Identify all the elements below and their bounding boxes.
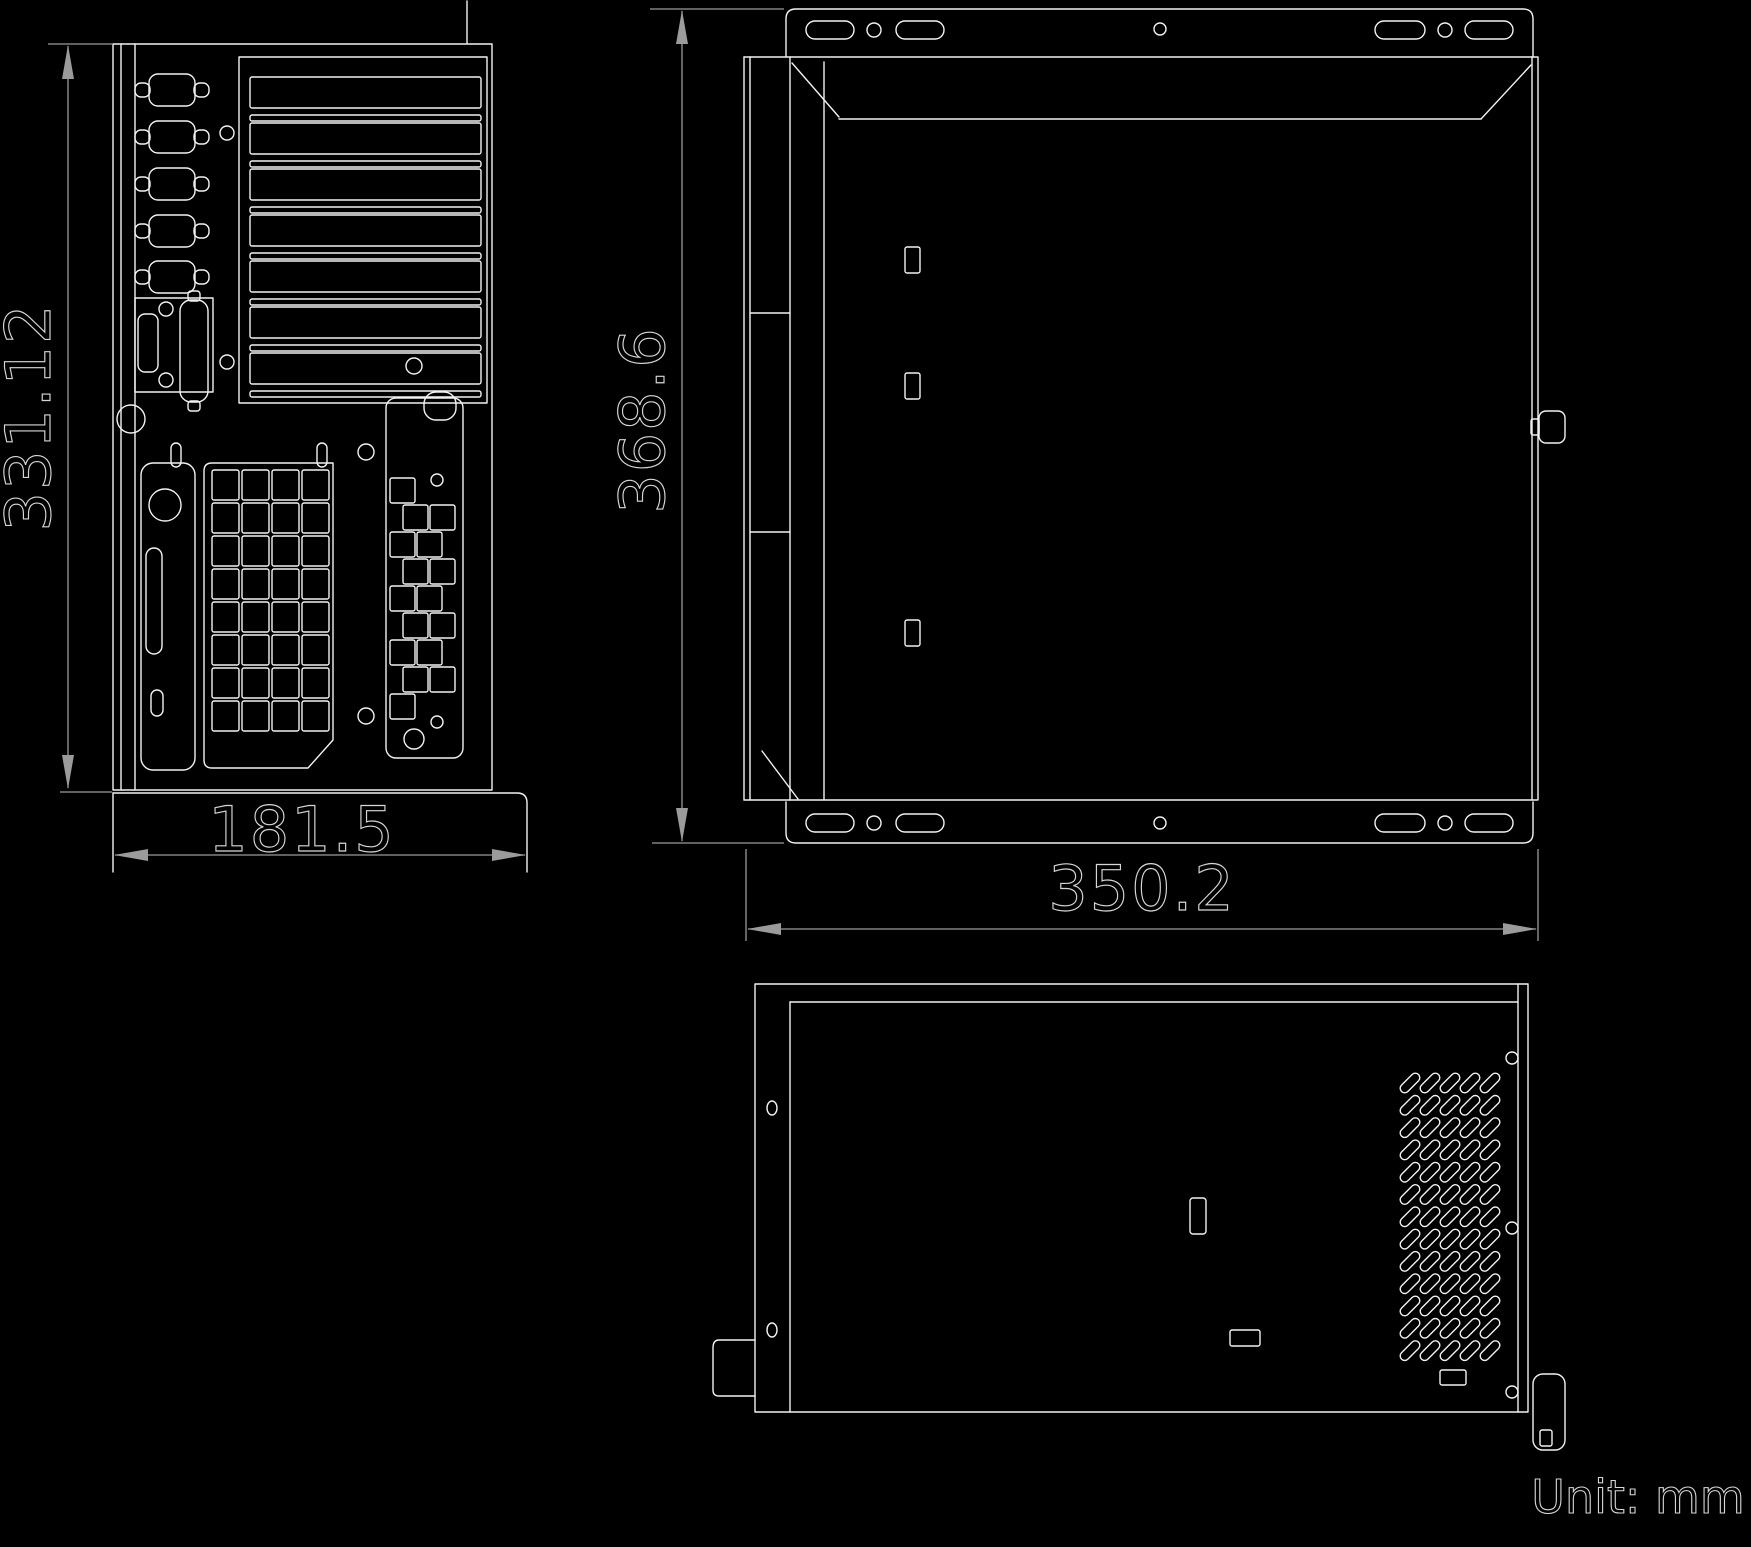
handle-notch — [424, 392, 456, 420]
serial-port-connector — [135, 215, 209, 247]
serial-port-connector — [135, 121, 209, 153]
side-tab — [713, 1340, 755, 1396]
io-bracket-left — [141, 463, 195, 770]
screw-hole — [431, 474, 443, 486]
expansion-slot-cover — [250, 353, 481, 397]
screw-hole — [404, 729, 424, 749]
expansion-slot-cover — [250, 215, 481, 259]
vent-grid-row — [212, 635, 329, 665]
chassis-dimension-drawing: 331.12 181.5 — [0, 0, 1751, 1547]
side-height-dimension-label: 368.6 — [606, 326, 679, 514]
screw-hole — [1506, 1386, 1518, 1398]
screw-hole — [767, 1323, 777, 1337]
top-mounting-flange — [786, 9, 1533, 57]
slot-cutout — [1230, 1330, 1260, 1346]
expansion-slot-cover — [250, 307, 481, 351]
drawing-page: 331.12 181.5 — [0, 0, 1751, 1547]
serial-port-connector — [135, 168, 209, 200]
dimension-rear-height: 331.12 — [0, 44, 112, 792]
mounting-slot — [1375, 814, 1425, 832]
psu-bracket — [386, 392, 463, 758]
round-cutout — [149, 489, 181, 521]
vent-grid-row — [212, 503, 329, 533]
screw-hole — [159, 373, 173, 387]
dimension-side-width: 350.2 — [746, 849, 1538, 941]
side-view — [744, 9, 1565, 843]
slot-cutout — [1440, 1370, 1466, 1385]
psu-vent-squares — [390, 478, 455, 719]
mounting-slot — [1465, 21, 1513, 39]
screw-hole — [406, 358, 422, 374]
rear-base-width-dimension-label: 181.5 — [208, 793, 396, 866]
mounting-hole — [1154, 23, 1166, 35]
video-port-panel — [135, 291, 213, 411]
slot-cutout — [1190, 1198, 1206, 1234]
dimension-rear-base-width: 181.5 — [114, 793, 526, 866]
unit-note: Unit: mm — [1531, 1470, 1744, 1524]
mounting-slot — [806, 21, 854, 39]
vent-grid-row — [212, 668, 329, 698]
mounting-hole — [1438, 816, 1452, 830]
vent-grid-row — [212, 602, 329, 632]
top-left-chamfer — [792, 63, 839, 117]
mounting-hole — [867, 23, 881, 37]
expansion-slot-area — [239, 57, 487, 403]
oval-cutout — [151, 690, 163, 716]
screw-hole — [358, 444, 374, 460]
panel-latch-slot — [905, 247, 920, 273]
front-bezel-strip — [744, 57, 824, 800]
rear-lock-tab — [1531, 411, 1565, 443]
serial-port-connector — [135, 74, 209, 106]
dvi-connector — [180, 300, 208, 402]
screw-hole — [1506, 1052, 1518, 1064]
vent-grid-row — [212, 701, 329, 731]
rear-height-dimension-label: 331.12 — [0, 303, 65, 532]
vent-grid-row — [212, 569, 329, 599]
mounting-hole — [867, 816, 881, 830]
expansion-slot-cover — [250, 77, 481, 121]
dimension-side-height: 368.6 — [606, 9, 784, 843]
bottom-view — [713, 984, 1565, 1450]
bottom-mounting-flange — [786, 802, 1533, 843]
bottom-left-chamfer — [762, 751, 798, 799]
panel-latch-slot — [905, 620, 920, 646]
screw-hole — [1506, 1222, 1518, 1234]
expansion-slot-cover — [250, 261, 481, 305]
vent-grid-row — [212, 536, 329, 566]
vent-grid-row — [212, 470, 329, 500]
mounting-slot — [806, 814, 854, 832]
serial-port-connector — [135, 261, 209, 293]
expansion-slot-cover — [250, 169, 481, 213]
mounting-slot — [896, 21, 944, 39]
serial-port-column — [135, 74, 209, 293]
screw-hole — [220, 355, 234, 369]
screw-hole — [358, 708, 374, 724]
screw-hole — [159, 302, 173, 316]
top-right-chamfer — [1481, 65, 1531, 119]
expansion-slot-cover — [250, 123, 481, 167]
rear-view — [113, 1, 527, 872]
screw-hole — [431, 716, 443, 728]
side-panel-outline — [744, 57, 1538, 800]
screw-hole — [767, 1101, 777, 1115]
mounting-slot — [1465, 814, 1513, 832]
mounting-slot — [896, 814, 944, 832]
mounting-hole — [1154, 817, 1166, 829]
corner-lock-tab — [1533, 1374, 1565, 1450]
screw-hole — [220, 126, 234, 140]
side-width-dimension-label: 350.2 — [1048, 852, 1236, 925]
vga-connector — [138, 314, 158, 372]
panel-latch-slot — [905, 373, 920, 399]
bottom-vent-field — [1398, 1071, 1501, 1362]
vent-grid-panel — [204, 463, 333, 768]
mounting-slot — [1375, 21, 1425, 39]
mounting-hole — [1438, 23, 1452, 37]
slot-cutout — [146, 548, 162, 654]
